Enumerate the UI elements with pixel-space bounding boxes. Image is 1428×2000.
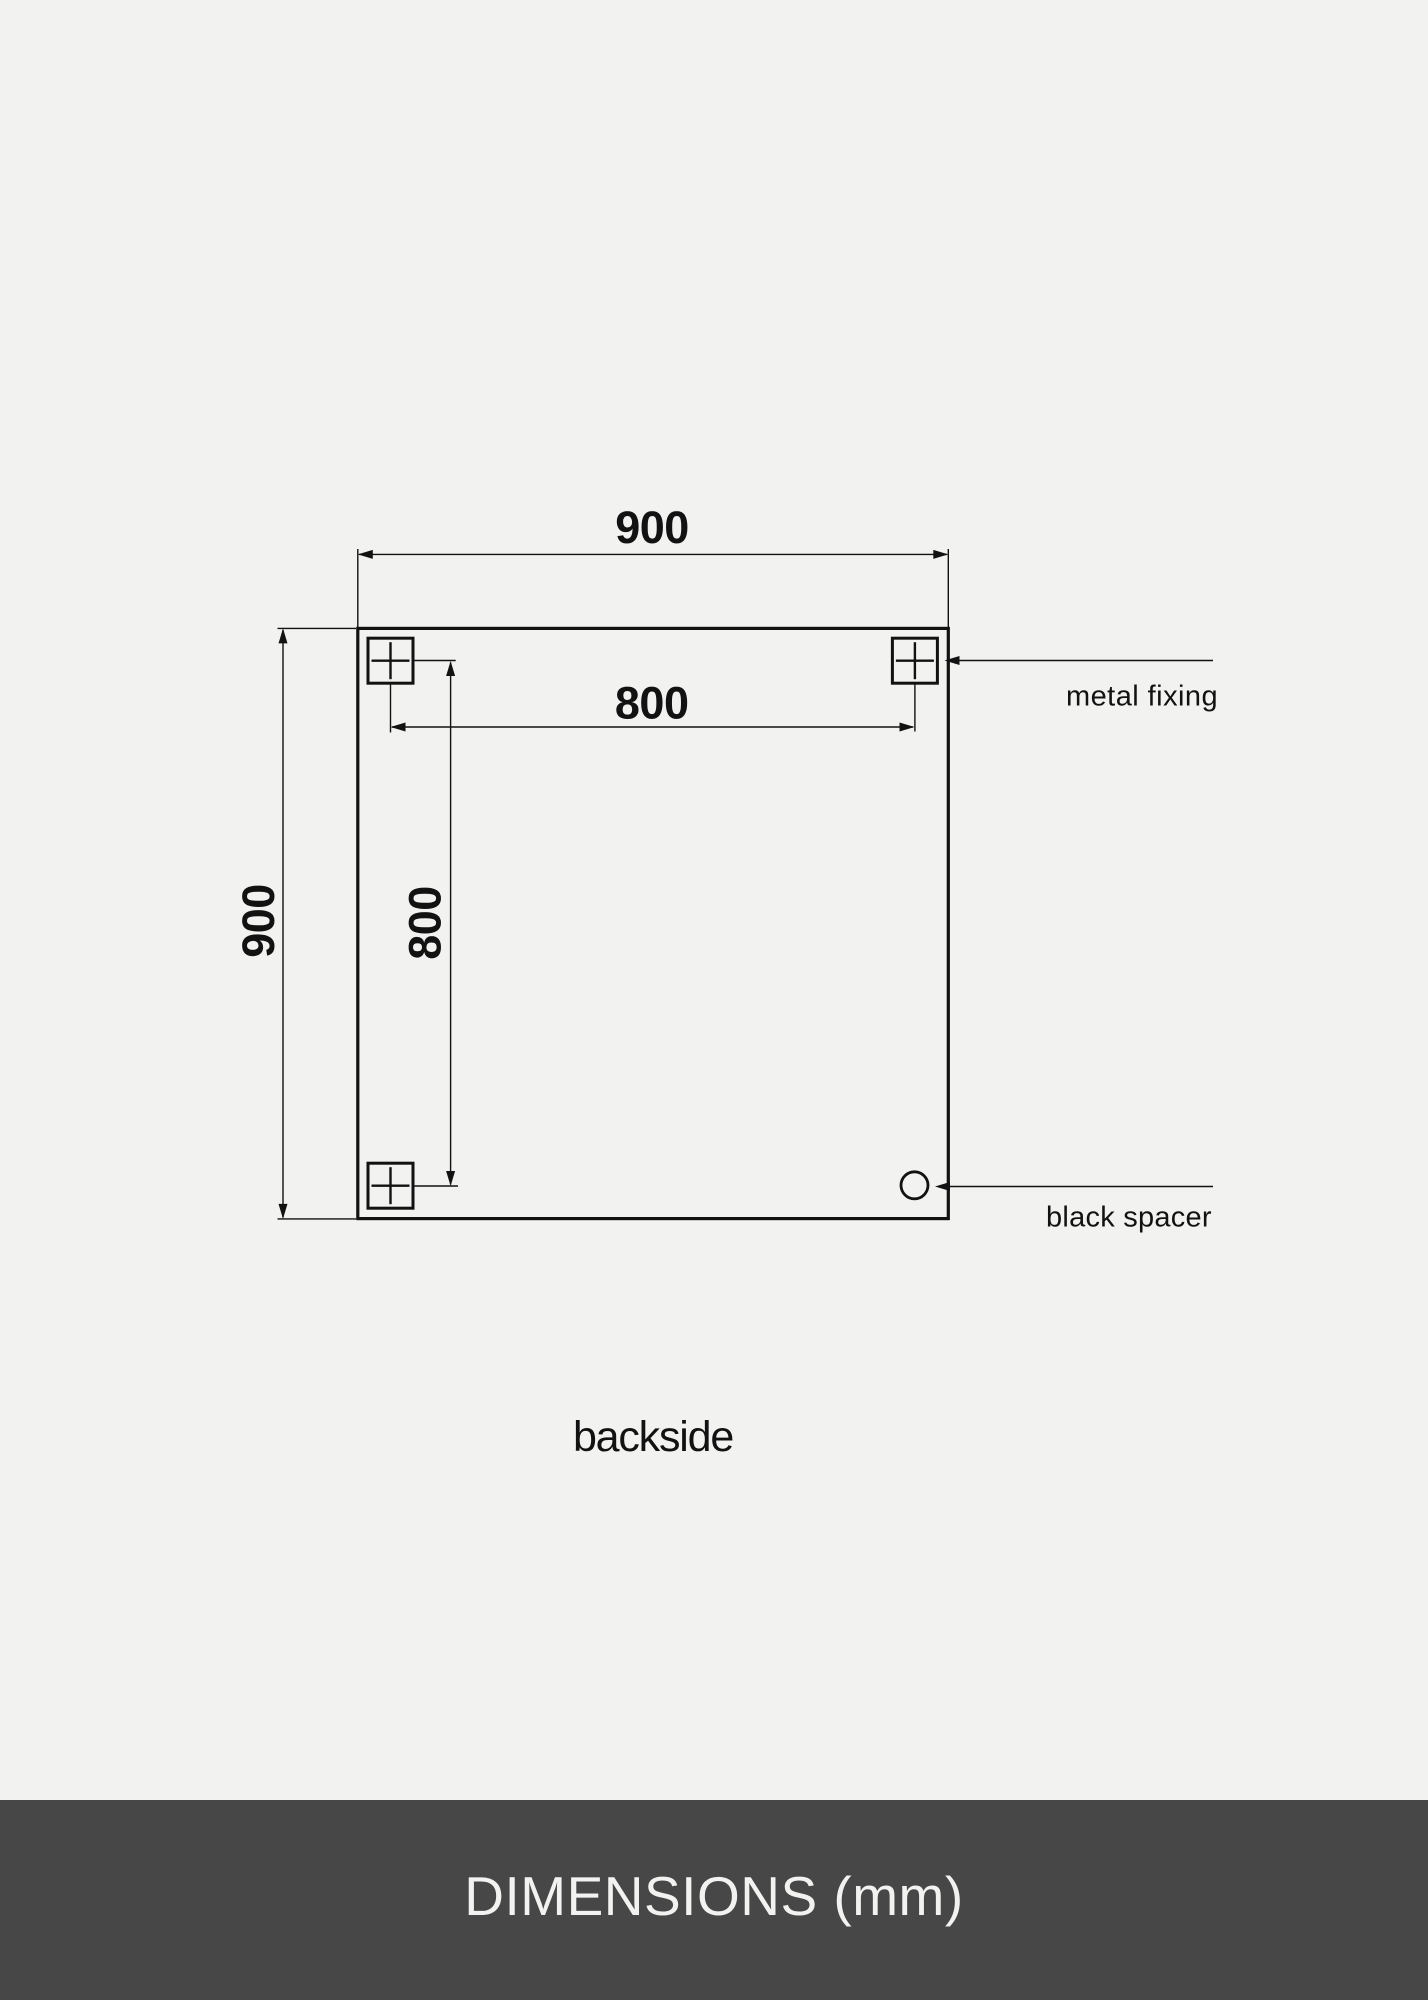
svg-text:DIMENSIONS (mm): DIMENSIONS (mm) [464,1865,963,1927]
svg-text:900: 900 [615,502,689,553]
svg-text:800: 800 [615,678,689,729]
svg-text:900: 900 [233,884,284,958]
svg-text:800: 800 [400,886,451,960]
svg-text:metal fixing: metal fixing [1066,681,1218,713]
svg-text:backside: backside [573,1413,733,1461]
svg-text:black spacer: black spacer [1046,1202,1212,1234]
